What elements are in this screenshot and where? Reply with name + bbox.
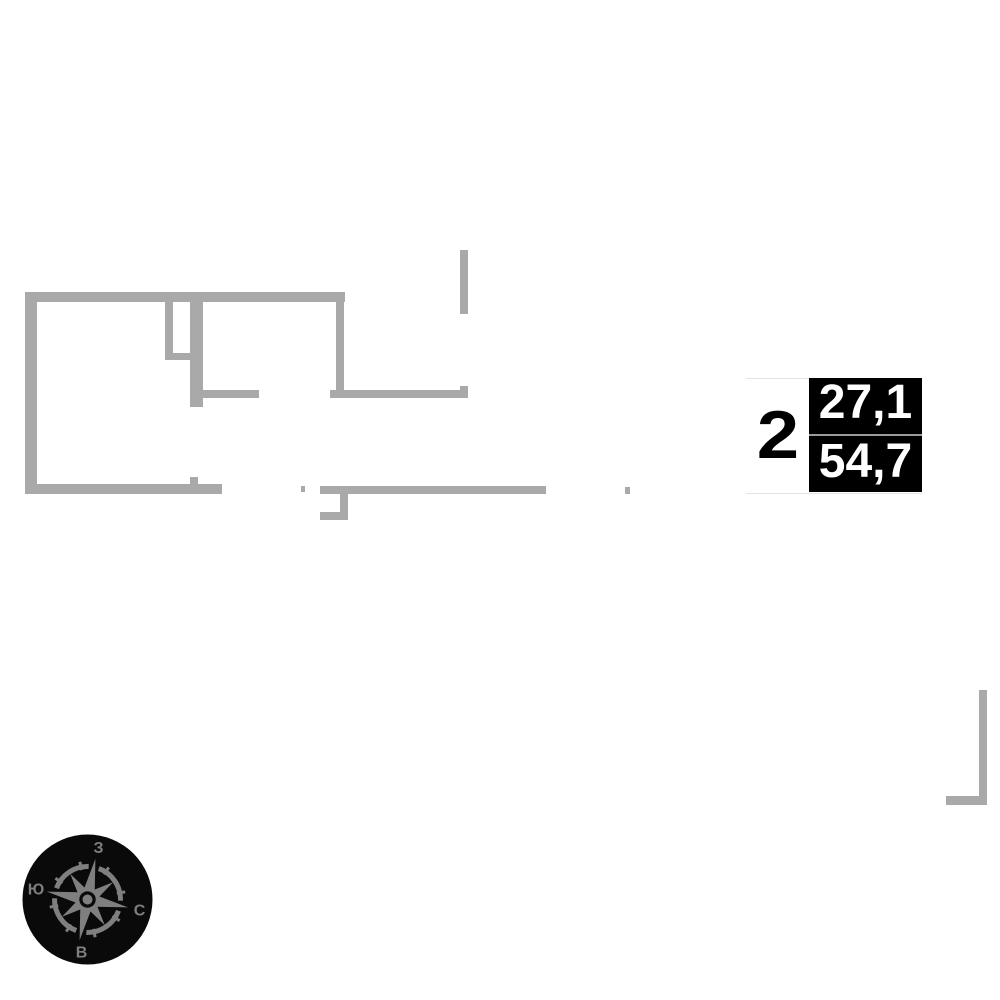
svg-text:С: С [134,903,146,920]
svg-text:З: З [93,840,103,857]
svg-text:Ю: Ю [28,882,45,899]
svg-text:В: В [76,945,88,962]
